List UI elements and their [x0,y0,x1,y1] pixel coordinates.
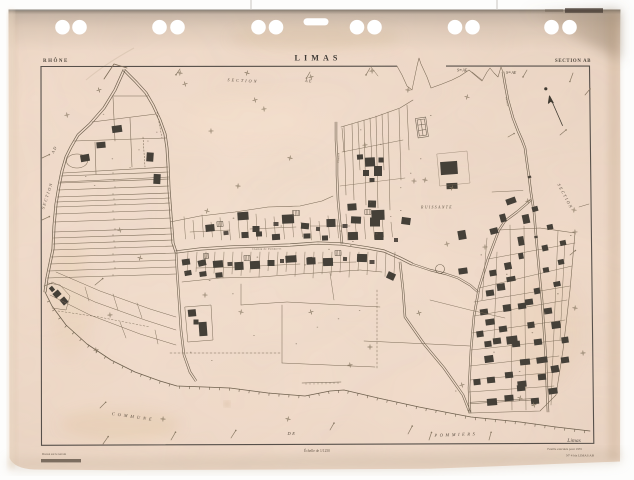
svg-text:Sᵒⁿ AE: Sᵒⁿ AE [506,70,517,75]
svg-text:Sᵒⁿ AE: Sᵒⁿ AE [457,68,468,73]
svg-text:Limas: Limas [566,438,580,444]
svg-text:DE: DE [286,431,296,436]
svg-text:Chemin: Chemin [337,152,340,163]
svg-text:RUISSANTE: RUISSANTE [420,206,453,210]
svg-text:AE: AE [304,78,313,83]
svg-text:Échelle de 1/1250: Échelle de 1/1250 [304,448,330,453]
svg-text:Feuille exécutée pour 1935: Feuille exécutée pour 1935 [547,447,582,451]
svg-text:SECTION AB: SECTION AB [555,59,591,64]
svg-text:LIMAS: LIMAS [294,54,341,63]
svg-text:RHÔNE: RHÔNE [43,58,69,64]
svg-text:Dressé sur le terrain: Dressé sur le terrain [42,452,67,456]
svg-text:N° 4 bis LIMAS AB: N° 4 bis LIMAS AB [566,454,595,458]
svg-text:Chemin de Pommiers: Chemin de Pommiers [252,247,282,251]
